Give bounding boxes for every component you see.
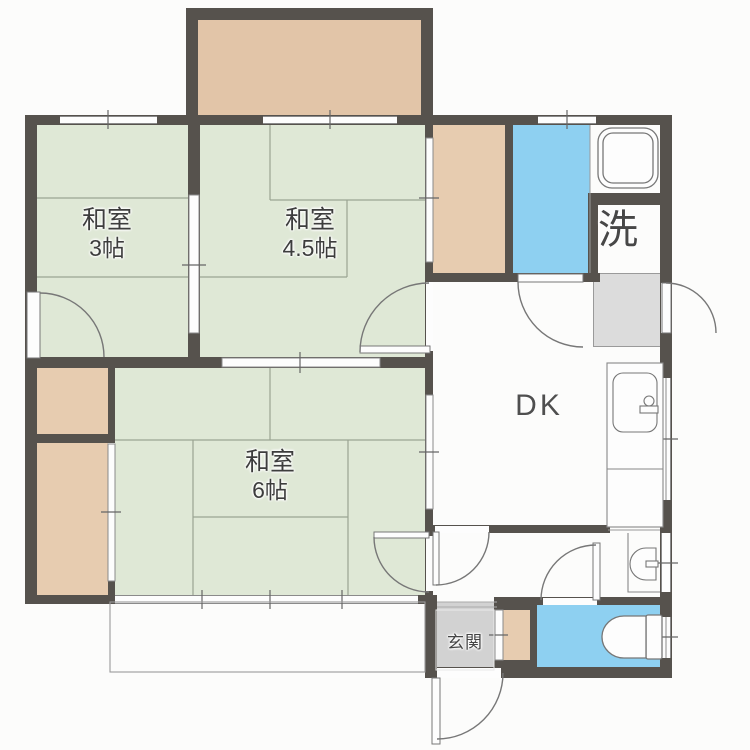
toilet-floor bbox=[537, 605, 660, 667]
kitchen-counter bbox=[607, 363, 663, 527]
wall-balcony-right bbox=[421, 8, 433, 125]
shoe-closet-floor bbox=[503, 610, 530, 660]
wall-top-left bbox=[25, 115, 433, 125]
room-label-laundry: 洗 bbox=[593, 216, 643, 244]
wall-shoe-closet-bottom bbox=[494, 660, 534, 668]
wall-bottom-entrance bbox=[425, 667, 672, 678]
wall-closet-right-upper bbox=[108, 362, 115, 437]
door-entrance bbox=[432, 673, 503, 744]
genkan-floor bbox=[433, 602, 497, 674]
room-name: 洗 bbox=[598, 216, 638, 244]
floorplan: 和室 3帖 和室 4.5帖 和室 6帖 DK 洗 玄関 bbox=[0, 0, 750, 750]
wall-washitsu3-washitsu45 bbox=[188, 115, 200, 365]
kitchen-sink-icon bbox=[613, 373, 658, 432]
room-washitsu45-floor bbox=[200, 125, 425, 357]
wall-right bbox=[660, 115, 672, 678]
wall-bottom-washitsu6 bbox=[25, 595, 433, 604]
wall-balcony-left bbox=[186, 8, 198, 125]
bathtub-icon bbox=[598, 128, 658, 188]
wall-laundry-left bbox=[588, 193, 598, 278]
room-name: DK bbox=[515, 392, 563, 420]
balcony-floor bbox=[198, 20, 421, 116]
bathroom-floor bbox=[513, 125, 590, 273]
wall-shoe-closet-top bbox=[494, 597, 534, 610]
wall-balcony-top bbox=[186, 8, 433, 20]
wall-toilet-top bbox=[530, 597, 672, 605]
veranda-outline bbox=[110, 602, 425, 672]
door-bathroom bbox=[518, 274, 583, 347]
washbasin-icon bbox=[630, 548, 658, 580]
wall-dk-bottom bbox=[425, 525, 610, 533]
wall-genkan-left bbox=[425, 595, 437, 678]
door-dk bbox=[433, 532, 489, 585]
room-washitsu6-floor bbox=[115, 368, 425, 595]
room-label-dk: DK bbox=[497, 392, 581, 420]
door-toilet bbox=[541, 543, 600, 600]
closet-lower-left-floor bbox=[37, 443, 108, 595]
room-washitsu3-floor bbox=[37, 125, 188, 357]
washbasin-nook bbox=[628, 533, 660, 592]
wall-mid-horizontal bbox=[25, 357, 433, 368]
closet-top-floor bbox=[433, 125, 505, 273]
wall-closet-divider bbox=[25, 434, 115, 443]
wall-bathtub-bottom bbox=[598, 193, 660, 205]
washing-machine-space bbox=[593, 273, 662, 347]
wall-bath-bottom bbox=[433, 273, 600, 282]
wall-closet-right-lower bbox=[108, 580, 115, 604]
wall-closet-bath bbox=[505, 122, 513, 282]
closet-upper-left-floor bbox=[37, 368, 108, 434]
wall-top-right bbox=[433, 115, 672, 125]
